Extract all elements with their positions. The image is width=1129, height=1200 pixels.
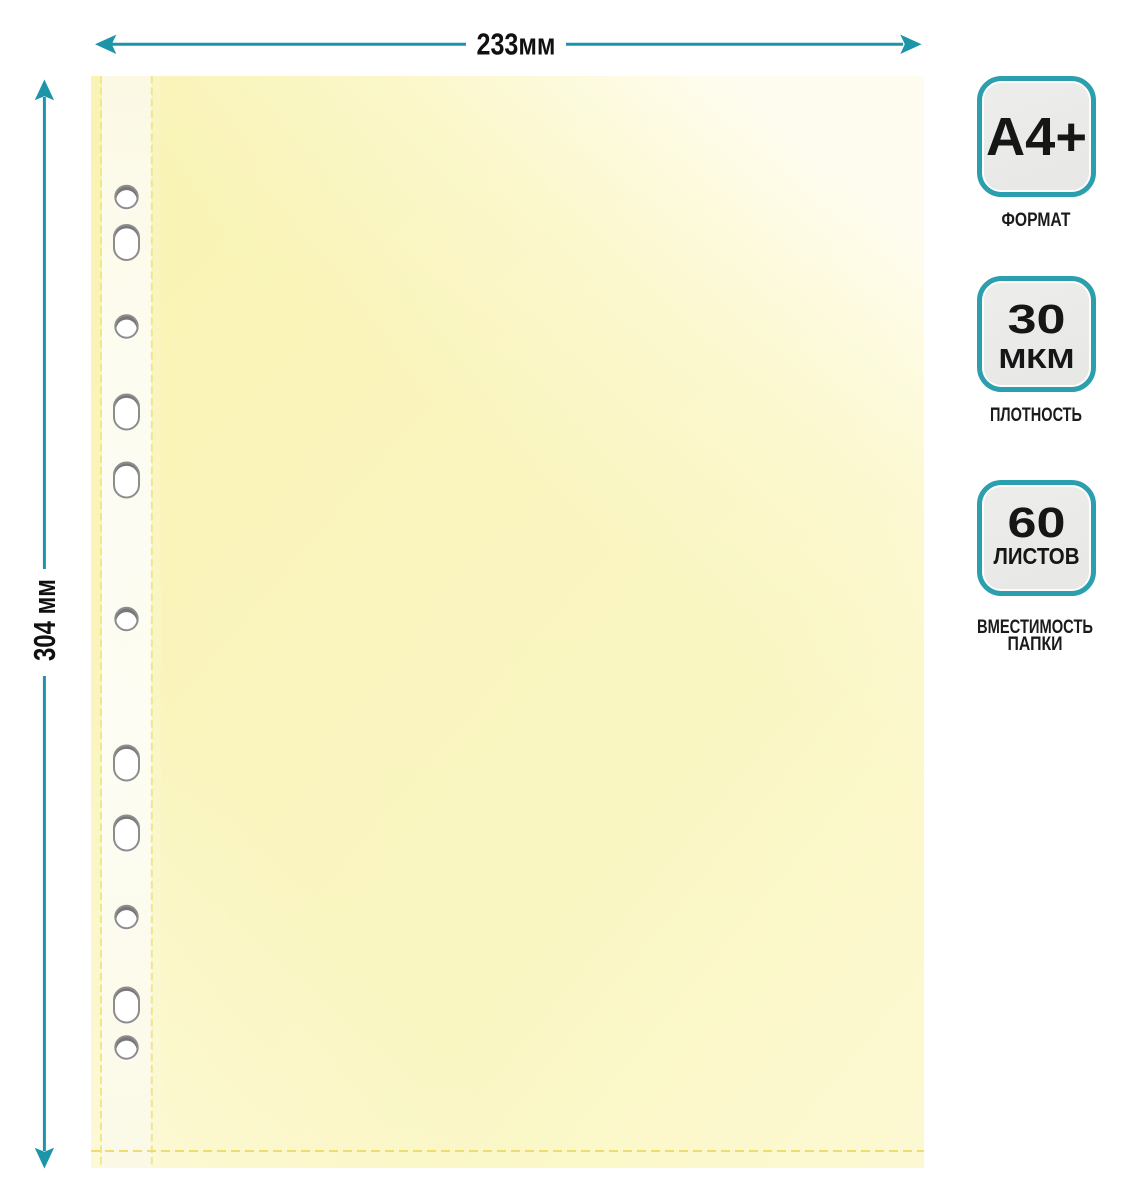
svg-text:30: 30 bbox=[1008, 296, 1066, 342]
svg-text:ПЛОТНОСТЬ: ПЛОТНОСТЬ bbox=[990, 404, 1082, 426]
svg-text:ПАПКИ: ПАПКИ bbox=[1008, 633, 1063, 655]
svg-text:60: 60 bbox=[1008, 499, 1066, 547]
svg-text:A4+: A4+ bbox=[986, 108, 1087, 167]
svg-text:ЛИСТОВ: ЛИСТОВ bbox=[994, 543, 1080, 569]
svg-text:304 мм: 304 мм bbox=[27, 579, 62, 661]
svg-text:МКМ: МКМ bbox=[999, 343, 1075, 374]
svg-text:233мм: 233мм bbox=[477, 27, 556, 62]
svg-text:ФОРМАТ: ФОРМАТ bbox=[1002, 209, 1071, 231]
